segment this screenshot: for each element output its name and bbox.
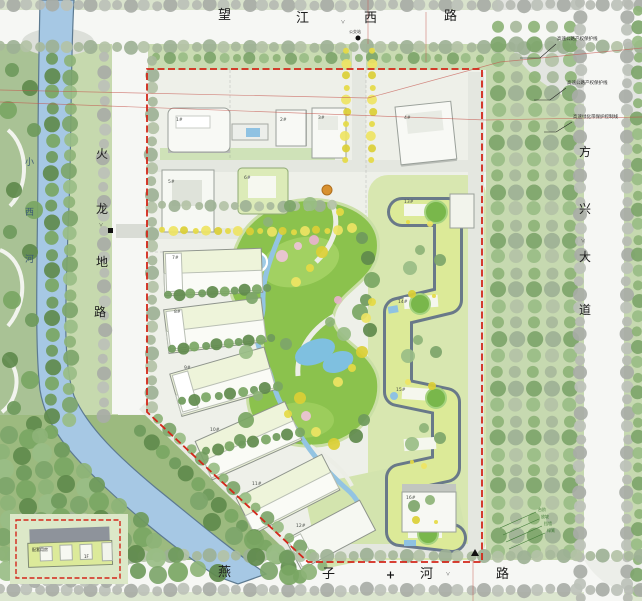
road-north-surface xyxy=(0,10,642,44)
inset-plot xyxy=(10,514,128,584)
plaza-feature xyxy=(322,185,332,195)
building-4 xyxy=(395,101,457,167)
west-entrance-pad xyxy=(116,224,150,238)
road-east-surface xyxy=(584,0,624,601)
building-1 xyxy=(168,108,230,153)
site-plan-drawing xyxy=(0,0,642,601)
building-13-tower xyxy=(450,194,474,228)
water-mirror xyxy=(246,128,260,137)
building-2 xyxy=(276,110,307,146)
site-plan-canvas: 高速公路产权保护线 高速公路产权保护线 高速绿化带保护控制线 台阶 放坡 挡墙 … xyxy=(0,0,642,601)
